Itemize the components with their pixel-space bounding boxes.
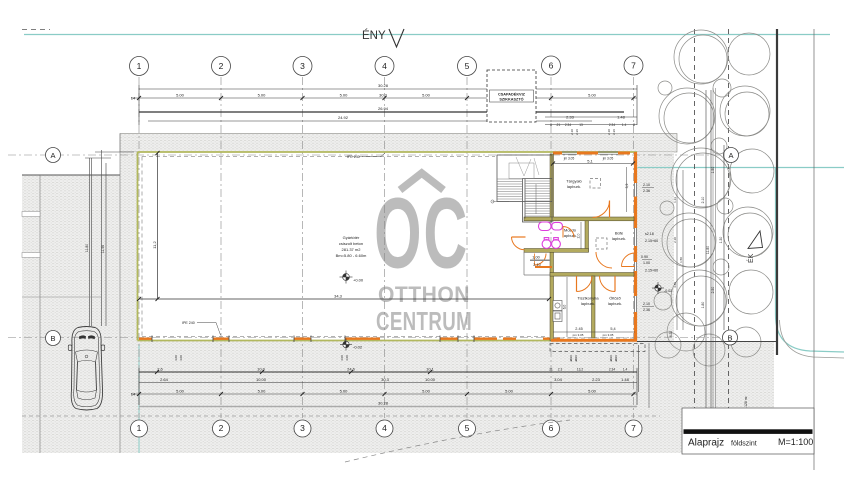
svg-text:5.00: 5.00: [176, 389, 185, 394]
svg-text:2: 2: [219, 423, 224, 433]
svg-text:2.10: 2.10: [643, 183, 650, 187]
svg-text:5.00: 5.00: [422, 93, 431, 98]
svg-text:IPE 240: IPE 240: [182, 321, 195, 325]
svg-text:jm 3.05: jm 3.05: [602, 157, 614, 161]
svg-text:1.4: 1.4: [623, 368, 628, 372]
svg-text:14: 14: [131, 96, 136, 101]
svg-text:4.00: 4.00: [345, 355, 349, 361]
svg-text:SZIKKASZTÓ: SZIKKASZTÓ: [499, 97, 523, 102]
svg-text:2.3: 2.3: [558, 368, 563, 372]
svg-text:30.28: 30.28: [378, 83, 389, 88]
svg-text:2.10: 2.10: [701, 197, 705, 204]
svg-text:4.00: 4.00: [174, 355, 178, 361]
svg-text:Tárgyaló: Tárgyaló: [566, 179, 582, 184]
svg-text:34,3: 34,3: [334, 294, 343, 299]
svg-text:2.45: 2.45: [575, 327, 582, 331]
svg-text:lapburk.: lapburk.: [612, 236, 626, 241]
svg-text:1.80: 1.80: [701, 302, 705, 309]
svg-text:Bm=5.80 - 6.60m: Bm=5.80 - 6.60m: [336, 253, 367, 258]
svg-text:Alaprajz: Alaprajz: [688, 438, 724, 449]
svg-text:11.80: 11.80: [706, 246, 710, 254]
svg-text:A: A: [728, 151, 733, 160]
svg-text:1: 1: [137, 423, 142, 433]
svg-text:1.50: 1.50: [679, 257, 683, 263]
svg-text:földszint: földszint: [731, 441, 757, 448]
svg-text:2.36: 2.36: [612, 129, 616, 135]
svg-text:5.00: 5.00: [340, 389, 349, 394]
svg-text:5.00: 5.00: [258, 389, 267, 394]
svg-text:lapburk.: lapburk.: [608, 301, 622, 306]
svg-text:ÉK: ÉK: [746, 253, 755, 263]
svg-text:21: 21: [549, 368, 553, 372]
svg-text:lapburk.: lapburk.: [581, 301, 595, 306]
svg-text:2.50: 2.50: [711, 287, 715, 294]
svg-text:5: 5: [465, 61, 470, 71]
svg-text:2.36: 2.36: [643, 189, 650, 193]
svg-text:.21: .21: [556, 123, 561, 127]
svg-text:4: 4: [382, 61, 387, 71]
svg-text:26.94: 26.94: [378, 106, 389, 111]
svg-text:4.00: 4.00: [340, 355, 344, 361]
svg-text:OC: OC: [374, 177, 469, 289]
svg-text:lapburk.: lapburk.: [567, 184, 581, 189]
svg-text:13: 13: [579, 123, 583, 127]
svg-text:2.15+60: 2.15+60: [645, 239, 658, 243]
svg-text:0.90: 0.90: [641, 255, 648, 259]
svg-text:30.28: 30.28: [378, 401, 389, 406]
svg-text:2.36: 2.36: [643, 308, 650, 312]
svg-text:4.128 m²: 4.128 m²: [744, 395, 748, 409]
svg-text:1,00: 1,00: [532, 256, 539, 260]
svg-text:20: 20: [609, 358, 613, 362]
svg-text:CENTRUM: CENTRUM: [376, 306, 472, 336]
svg-text:5.00: 5.00: [340, 93, 349, 98]
svg-text:2.10: 2.10: [673, 237, 677, 243]
svg-text:1.00: 1.00: [643, 261, 650, 265]
svg-text:2.10: 2.10: [570, 129, 574, 135]
svg-text:20: 20: [569, 358, 573, 362]
svg-text:Büfé: Büfé: [615, 231, 624, 236]
svg-text:1.4: 1.4: [622, 123, 627, 127]
svg-text:30,3: 30,3: [381, 377, 390, 382]
svg-text:M=1:100: M=1:100: [778, 437, 813, 447]
svg-text:pm 3.05: pm 3.05: [573, 333, 584, 337]
svg-text:24.92: 24.92: [338, 115, 349, 120]
svg-text:8: 8: [550, 123, 552, 127]
svg-text:4.40: 4.40: [673, 282, 677, 288]
svg-text:2.34: 2.34: [609, 123, 615, 127]
svg-text:6: 6: [549, 61, 554, 71]
svg-text:1.48: 1.48: [621, 377, 630, 382]
svg-text:2.10: 2.10: [643, 302, 650, 306]
svg-text:11.80: 11.80: [85, 244, 89, 252]
svg-text:pm 3.05: pm 3.05: [603, 333, 614, 337]
svg-text:2.36: 2.36: [575, 129, 579, 135]
svg-text:CSAPADÉKVIZ: CSAPADÉKVIZ: [498, 92, 526, 97]
svg-text:10,0: 10,0: [257, 367, 266, 372]
svg-text:4: 4: [382, 423, 387, 433]
svg-text:-0.02: -0.02: [664, 289, 672, 293]
svg-text:B: B: [50, 334, 55, 343]
svg-text:6,0: 6,0: [563, 305, 567, 310]
svg-text:14: 14: [131, 392, 136, 397]
svg-text:3,9: 3,9: [625, 184, 629, 189]
svg-text:7: 7: [631, 423, 636, 433]
svg-text:2: 2: [219, 61, 224, 71]
svg-text:20: 20: [574, 358, 578, 362]
svg-text:3.04: 3.04: [554, 377, 563, 382]
svg-text:2.34: 2.34: [565, 123, 571, 127]
svg-text:30.3: 30.3: [379, 93, 388, 98]
svg-text:5.00: 5.00: [588, 389, 597, 394]
svg-text:11.56: 11.56: [101, 245, 105, 253]
svg-text:5,4: 5,4: [610, 327, 615, 331]
svg-text:5.00: 5.00: [176, 93, 185, 98]
svg-text:s2.18: s2.18: [645, 232, 654, 236]
svg-text:6: 6: [549, 423, 554, 433]
svg-text:2.64: 2.64: [160, 377, 169, 382]
svg-text:OTTHON: OTTHON: [378, 282, 470, 308]
svg-text:11,2: 11,2: [152, 240, 157, 248]
svg-text:1.30: 1.30: [719, 237, 723, 244]
svg-text:2,6: 2,6: [157, 367, 163, 372]
svg-text:5: 5: [465, 423, 470, 433]
svg-text:Öltöző: Öltöző: [609, 296, 621, 301]
svg-text:10.00: 10.00: [256, 377, 267, 382]
svg-text:5.00: 5.00: [422, 389, 431, 394]
svg-text:24,6: 24,6: [347, 367, 356, 372]
svg-text:2.10: 2.10: [607, 129, 611, 135]
svg-text:-0.02: -0.02: [353, 345, 363, 350]
svg-text:7: 7: [631, 61, 636, 71]
svg-text:csiszolt beton: csiszolt beton: [339, 241, 363, 246]
svg-text:ÉNY: ÉNY: [362, 29, 386, 42]
svg-text:+0.00: +0.00: [353, 278, 364, 283]
svg-text:8: 8: [633, 123, 635, 127]
svg-text:lapburk.: lapburk.: [563, 233, 577, 238]
svg-text:3: 3: [300, 423, 305, 433]
svg-text:4.00: 4.00: [179, 355, 183, 361]
svg-text:Gyártótér: Gyártótér: [343, 235, 360, 240]
svg-text:1.50: 1.50: [711, 167, 715, 174]
svg-text:IPE 240: IPE 240: [347, 155, 360, 159]
svg-text:5.00: 5.00: [588, 93, 597, 98]
svg-text:2.15+60: 2.15+60: [645, 269, 658, 273]
svg-text:5.00: 5.00: [505, 389, 514, 394]
svg-text:Tisztkonyha: Tisztkonyha: [577, 296, 599, 301]
svg-text:jm 3.05: jm 3.05: [563, 157, 575, 161]
svg-text:1.13: 1.13: [673, 197, 677, 203]
svg-text:5.00: 5.00: [258, 93, 267, 98]
svg-text:20: 20: [614, 358, 618, 362]
svg-text:3: 3: [300, 61, 305, 71]
svg-text:2.34: 2.34: [609, 368, 615, 372]
svg-text:6.22: 6.22: [669, 331, 673, 337]
svg-text:5,1: 5,1: [587, 158, 593, 163]
svg-text:13,2: 13,2: [577, 368, 583, 372]
svg-text:10,1: 10,1: [426, 367, 435, 372]
svg-text:A: A: [50, 151, 55, 160]
svg-text:1: 1: [137, 61, 142, 71]
svg-text:2,10: 2,10: [533, 263, 540, 267]
svg-text:2,0: 2,0: [577, 234, 581, 239]
svg-text:2.23: 2.23: [592, 377, 601, 382]
svg-text:10.00: 10.00: [425, 377, 436, 382]
svg-text:281.37 m2: 281.37 m2: [342, 247, 362, 252]
